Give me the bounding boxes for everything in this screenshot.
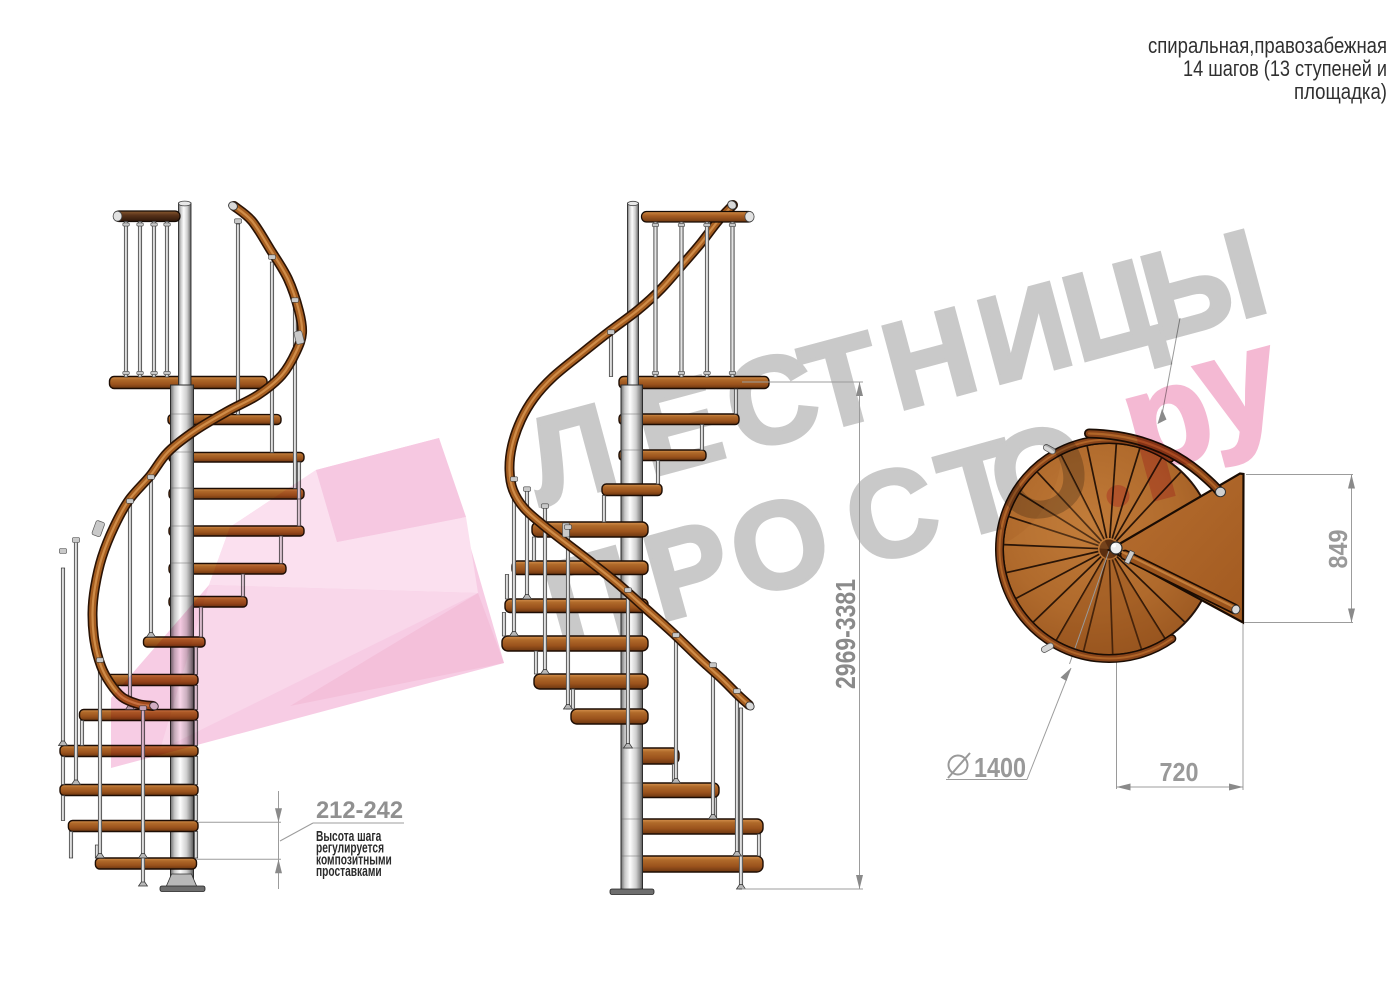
svg-text:212-242: 212-242 <box>316 797 403 824</box>
svg-text:1400: 1400 <box>974 752 1026 783</box>
svg-text:спиральная,правозабежная: спиральная,правозабежная <box>1148 33 1387 58</box>
svg-text:720: 720 <box>1160 757 1199 787</box>
svg-text:Высота шагарегулируетсякомпози: Высота шагарегулируетсякомпозитнымипрост… <box>316 827 392 880</box>
svg-text:площадка): площадка) <box>1294 79 1387 104</box>
svg-text:849: 849 <box>1323 530 1353 569</box>
svg-text:14 шагов (13 ступеней и: 14 шагов (13 ступеней и <box>1183 56 1387 81</box>
svg-text:2969-3381: 2969-3381 <box>830 579 861 689</box>
